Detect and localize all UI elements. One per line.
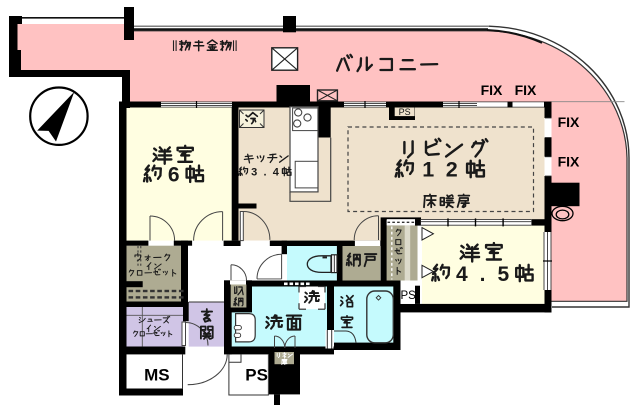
svg-text:.: .	[263, 167, 266, 179]
svg-text:4: 4	[456, 263, 468, 286]
svg-text:FIX: FIX	[558, 153, 580, 169]
svg-text:2: 2	[446, 158, 458, 182]
svg-text:5: 5	[498, 263, 510, 286]
svg-text:.: .	[480, 263, 486, 286]
svg-text:3: 3	[251, 167, 257, 179]
svg-text:FIX: FIX	[481, 82, 503, 98]
svg-text:4: 4	[273, 167, 280, 179]
svg-text:PS: PS	[401, 290, 417, 302]
svg-text:6: 6	[168, 164, 180, 187]
svg-text:FIX: FIX	[515, 82, 537, 98]
svg-text:PS: PS	[399, 107, 411, 117]
svg-text:MS: MS	[144, 365, 170, 384]
svg-text:PS: PS	[245, 365, 268, 384]
svg-text:1: 1	[422, 158, 434, 182]
svg-text:FIX: FIX	[558, 114, 580, 130]
